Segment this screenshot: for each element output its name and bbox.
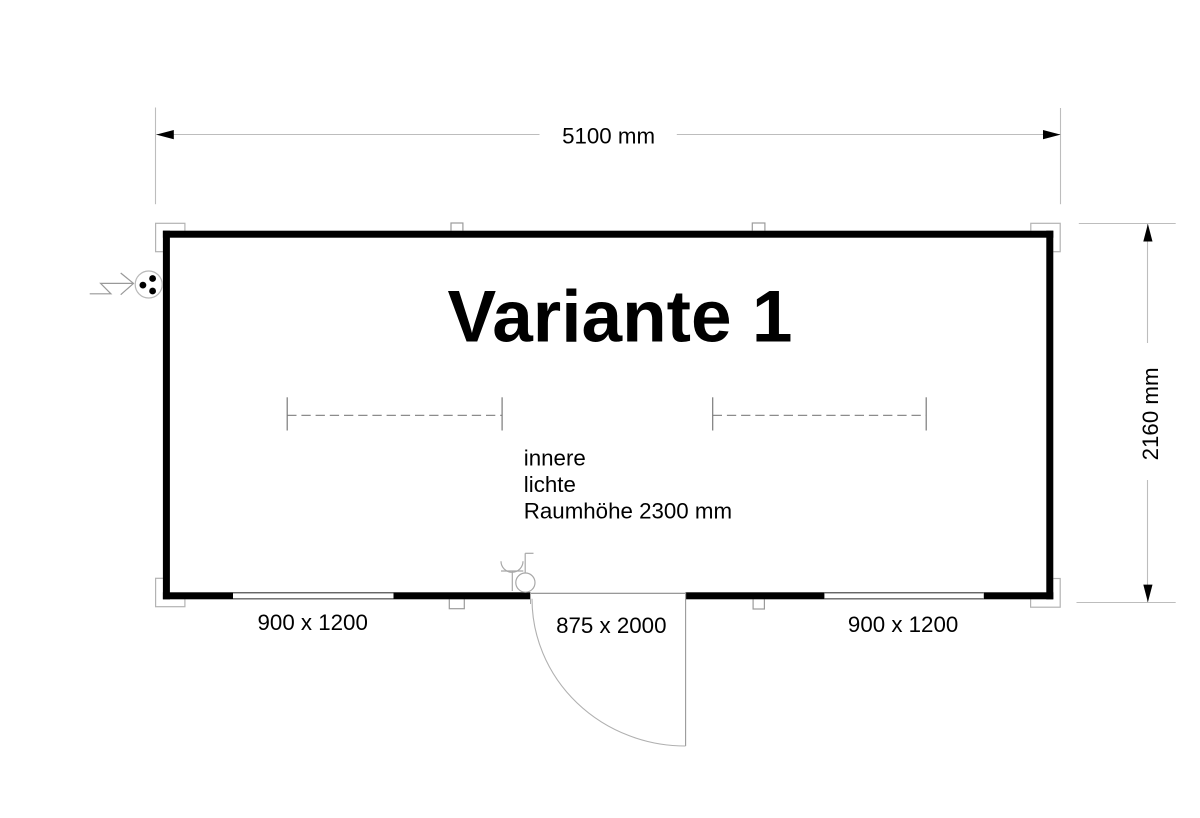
- svg-text:lichte: lichte: [524, 472, 576, 497]
- svg-text:Raumhöhe 2300 mm: Raumhöhe 2300 mm: [524, 499, 732, 524]
- svg-text:2160 mm: 2160 mm: [1138, 367, 1163, 460]
- svg-text:5100 mm: 5100 mm: [562, 123, 655, 148]
- svg-text:875 x 2000: 875 x 2000: [556, 613, 666, 638]
- svg-text:900 x 1200: 900 x 1200: [848, 612, 958, 637]
- svg-text:innere: innere: [524, 446, 586, 471]
- svg-text:900 x 1200: 900 x 1200: [258, 610, 368, 635]
- svg-text:Variante 1: Variante 1: [448, 277, 793, 358]
